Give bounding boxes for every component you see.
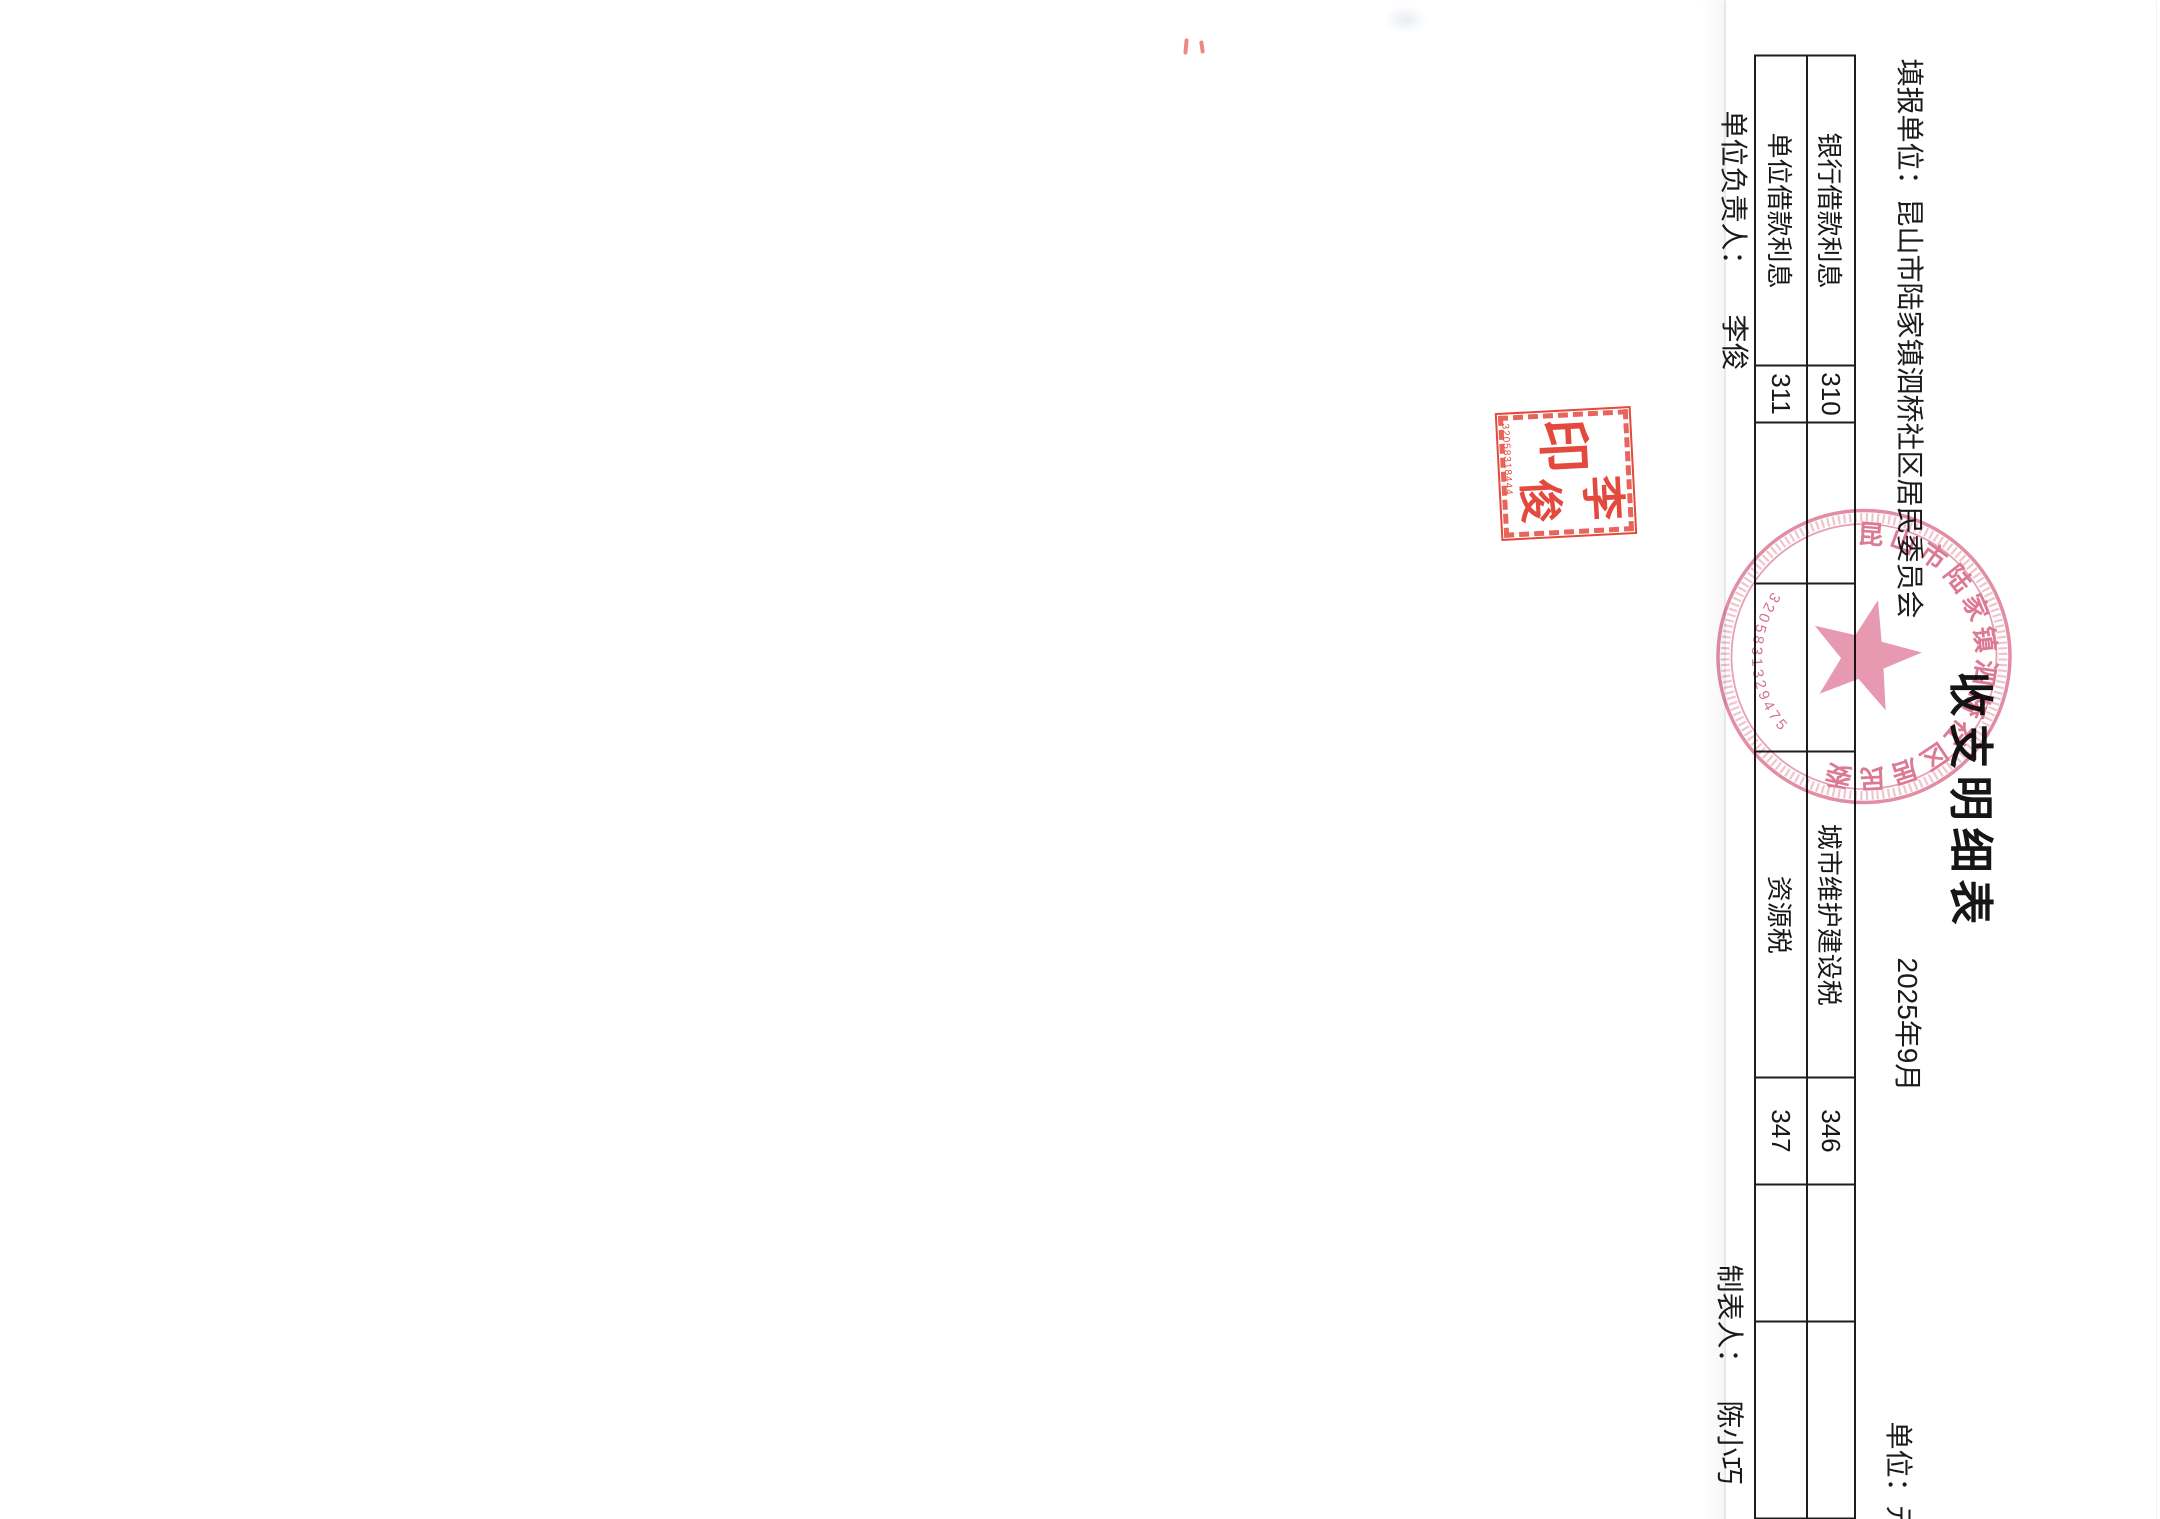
- seal-char-yin: 印: [1513, 418, 1623, 472]
- table-cell-code: 311: [1755, 365, 1807, 422]
- name-seal-stamp: 印 李 俊 32058318444: [1495, 406, 1638, 541]
- star-icon: [1813, 597, 1925, 714]
- table-cell-item: 单位借款利息: [1755, 55, 1807, 365]
- table-cell-empty: [1755, 1184, 1807, 1321]
- table-cell-empty: [1755, 1321, 1807, 1518]
- svg-text:3205831329475: 3205831329475: [1743, 588, 1793, 738]
- stray-ink-mark: [1183, 38, 1188, 54]
- table-cell-code: 347: [1755, 1077, 1807, 1184]
- seal-name-char-bottom: 俊: [1516, 477, 1563, 524]
- scan-smudge: [1384, 5, 1428, 33]
- seal-name-char-top: 李: [1579, 474, 1626, 521]
- round-official-seal-stamp: 昆山市陆家镇泗桥社区居民委员会 3205831329475: [1714, 506, 2014, 806]
- stray-ink-mark: [1199, 40, 1205, 53]
- table-cell-item: 银行借款利息: [1807, 55, 1855, 365]
- scan-edge-line: [2156, 0, 2157, 1519]
- table-cell-empty: [1807, 1184, 1855, 1321]
- table-cell-code: 346: [1807, 1077, 1855, 1184]
- scanned-page: 收支明细表 填报单位：昆山市陆家镇泗桥社区居民委员会 2025年9月 单位：元 …: [0, 0, 2160, 1519]
- table-cell-empty: [1807, 1321, 1855, 1518]
- seal-registration-number: 3205831329475: [1743, 588, 1793, 738]
- report-period: 2025年9月: [1889, 957, 1929, 1091]
- unit-of-measure: 单位：元: [1880, 1421, 1920, 1519]
- paper-document: 收支明细表 填报单位：昆山市陆家镇泗桥社区居民委员会 2025年9月 单位：元 …: [0, 0, 2160, 1519]
- reporting-unit-label: 填报单位：: [1894, 58, 1925, 198]
- table-cell-code: 310: [1807, 365, 1855, 422]
